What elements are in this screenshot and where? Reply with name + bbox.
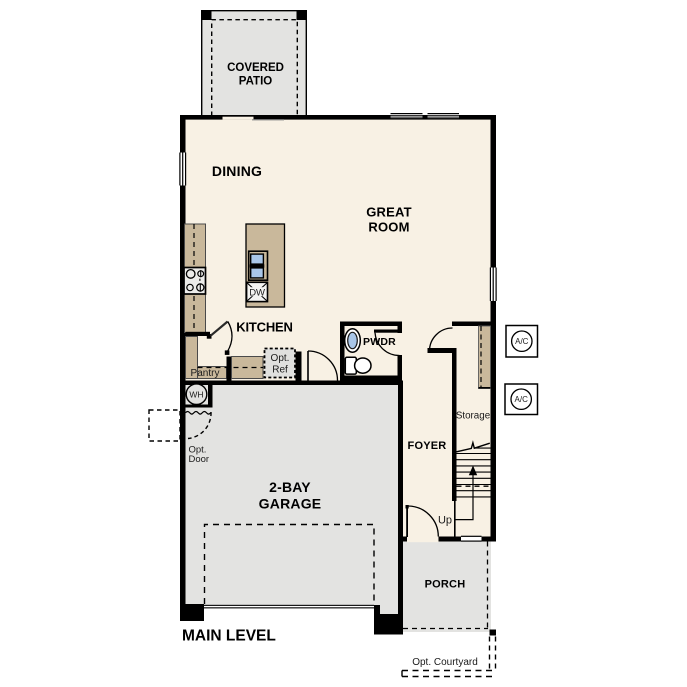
svg-text:FOYER: FOYER	[408, 440, 447, 452]
svg-text:WH: WH	[189, 389, 203, 399]
svg-text:Opt.: Opt.	[271, 353, 290, 364]
svg-text:Pantry: Pantry	[191, 368, 220, 379]
svg-text:DW: DW	[249, 287, 265, 298]
svg-text:KITCHEN: KITCHEN	[236, 320, 292, 335]
svg-text:GARAGE: GARAGE	[259, 496, 322, 512]
svg-text:MAIN LEVEL: MAIN LEVEL	[182, 628, 276, 645]
svg-text:Opt. Courtyard: Opt. Courtyard	[412, 657, 478, 668]
svg-text:PWDR: PWDR	[363, 336, 396, 348]
svg-text:GREAT: GREAT	[366, 204, 412, 219]
svg-text:Door: Door	[189, 454, 210, 465]
svg-text:PATIO: PATIO	[239, 76, 272, 88]
svg-text:COVERED: COVERED	[227, 62, 284, 74]
svg-text:Storage: Storage	[456, 411, 491, 422]
svg-text:PORCH: PORCH	[425, 579, 466, 591]
svg-text:ROOM: ROOM	[368, 220, 409, 235]
svg-text:A/C: A/C	[515, 337, 529, 346]
svg-text:DINING: DINING	[212, 163, 262, 179]
svg-text:A/C: A/C	[515, 395, 529, 404]
svg-text:Up: Up	[438, 515, 452, 527]
svg-text:2-BAY: 2-BAY	[269, 479, 311, 495]
svg-text:Ref: Ref	[272, 365, 288, 376]
